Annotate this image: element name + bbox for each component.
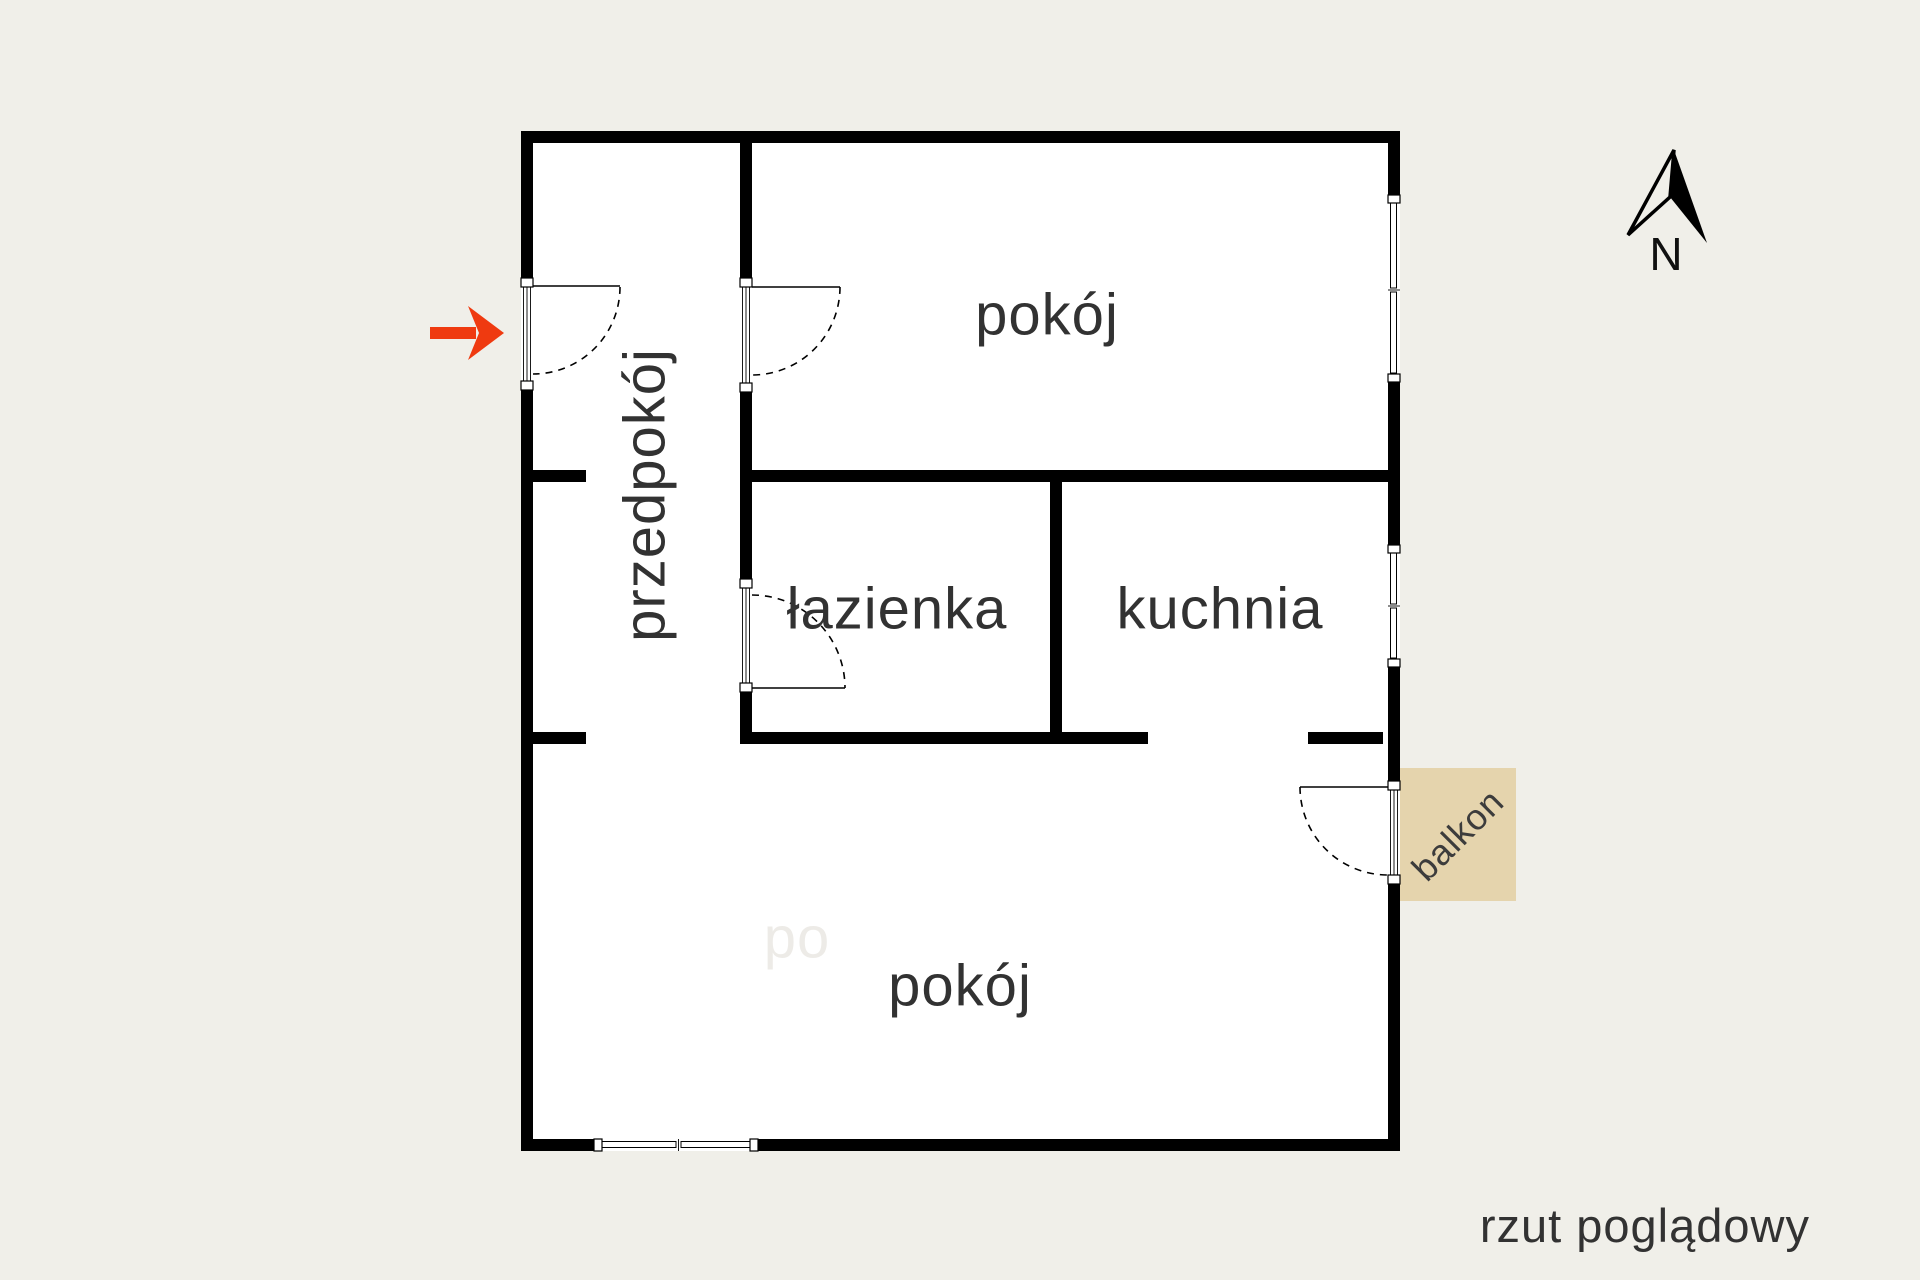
room-label-bathroom: łazienka <box>787 576 1008 643</box>
room-label-kitchen: kuchnia <box>1117 576 1324 643</box>
floor-plan-canvas: balkon <box>0 0 1920 1280</box>
room-label-room-bottom: pokój <box>888 953 1032 1020</box>
window-room-bottom <box>594 1139 758 1151</box>
room-top-door <box>740 278 840 392</box>
window-kitchen <box>1388 545 1400 667</box>
balcony-door <box>1300 781 1400 884</box>
entrance-door <box>521 278 620 390</box>
watermark-text: po <box>764 905 831 972</box>
room-label-hallway: przedpokój <box>612 348 679 642</box>
room-label-room-top: pokój <box>975 282 1119 349</box>
window-room-top <box>1388 195 1400 382</box>
plan-caption: rzut poglądowy <box>1480 1198 1810 1253</box>
entrance-arrow-icon <box>430 306 504 360</box>
compass-north-label: N <box>1649 227 1682 281</box>
